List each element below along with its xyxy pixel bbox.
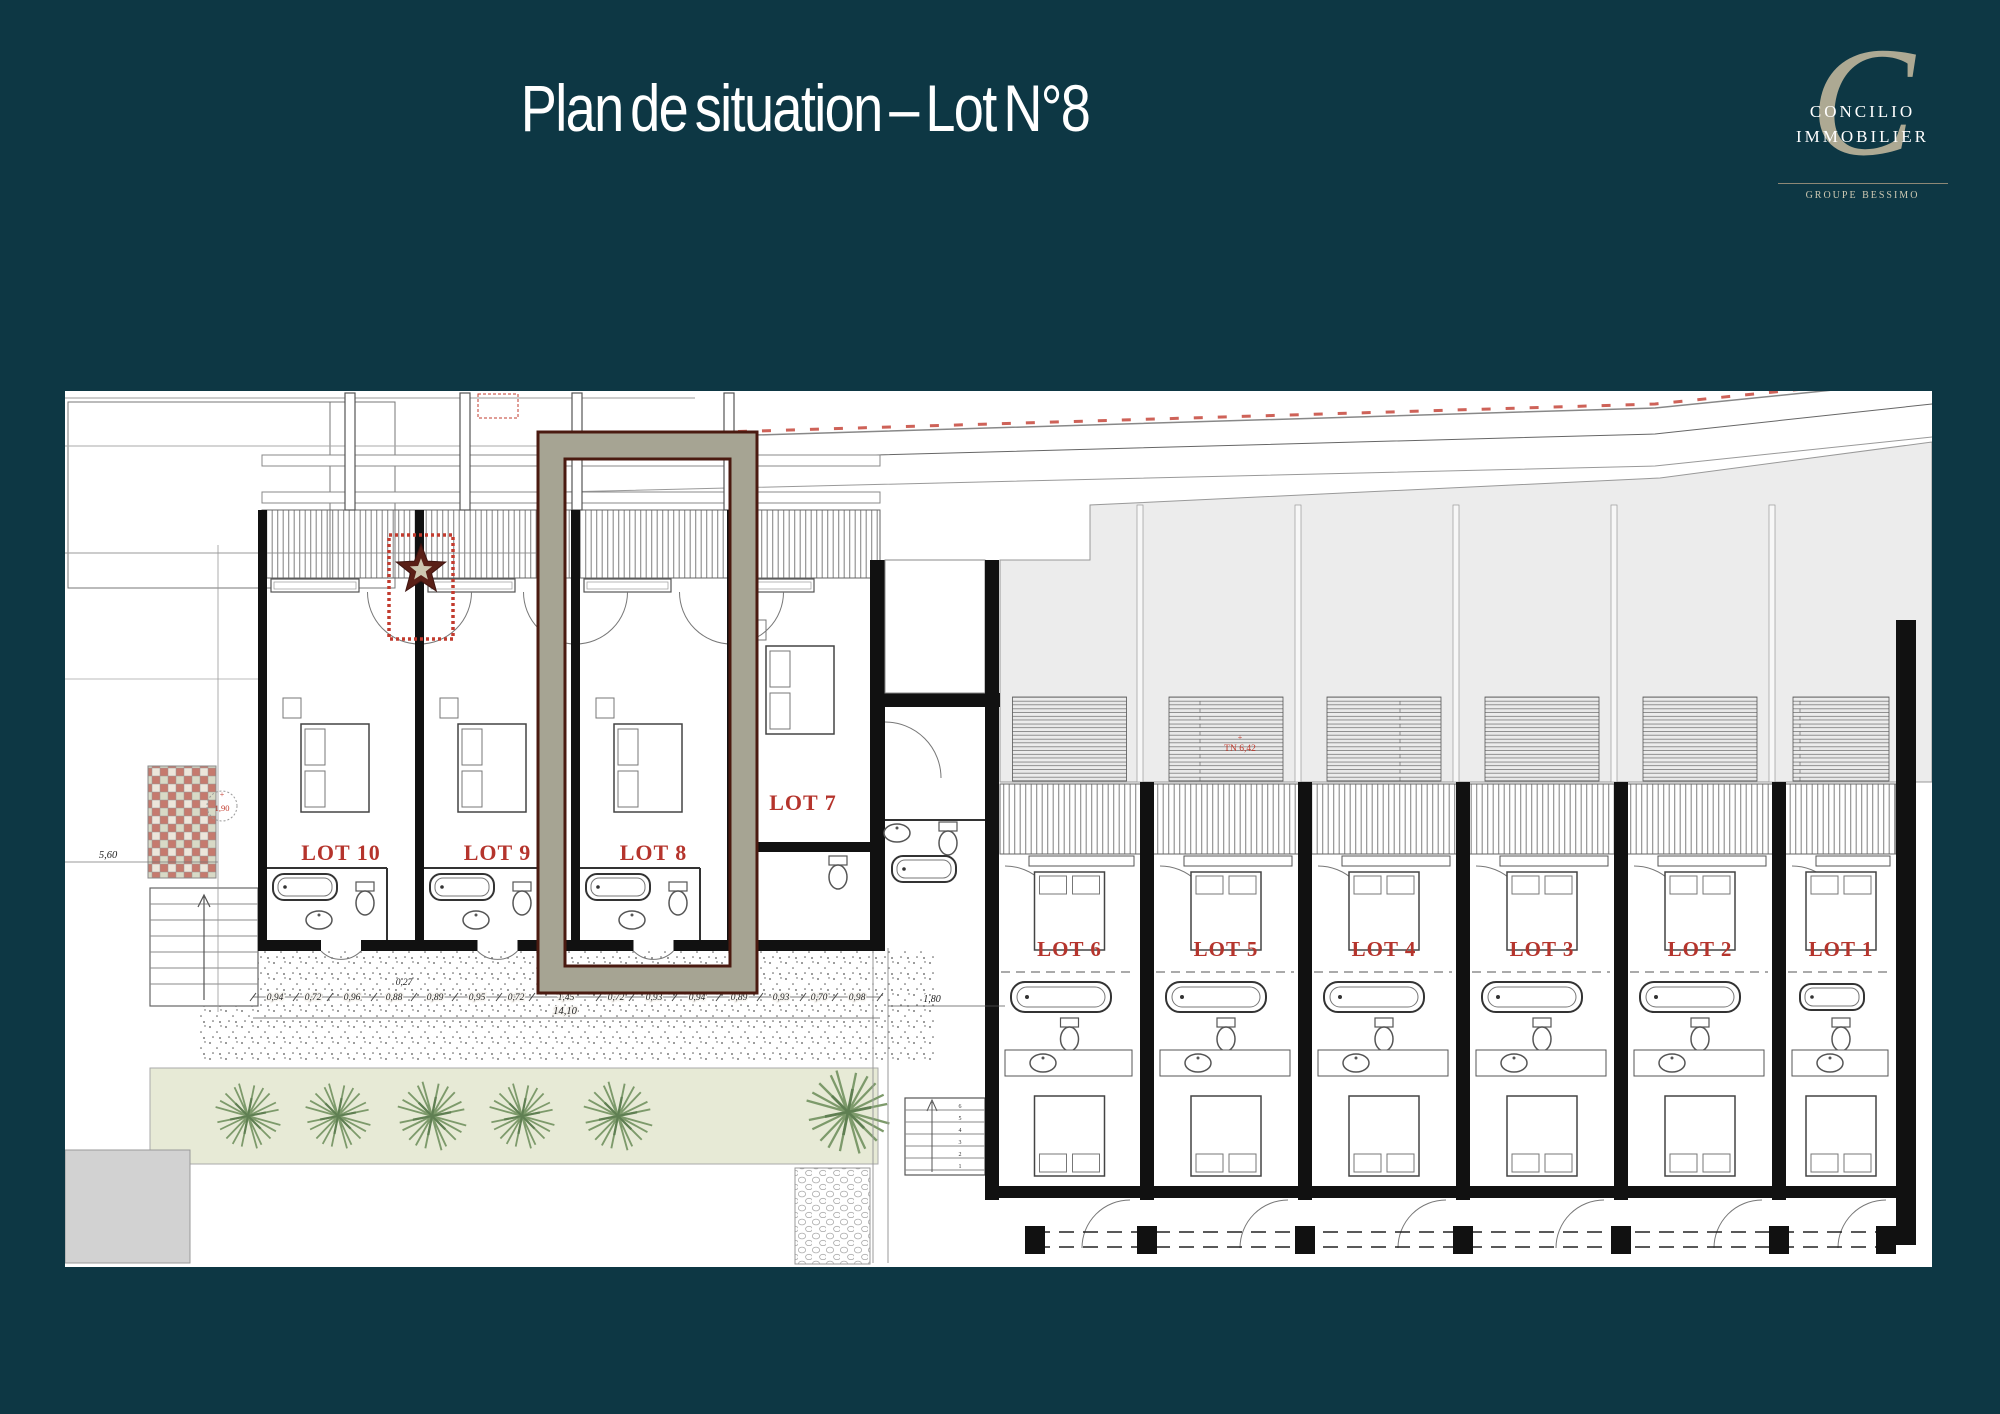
- dimension-label: 1,80: [923, 994, 941, 1005]
- toilet-icon: [829, 856, 847, 889]
- wall: [985, 1186, 1916, 1198]
- dimension-label: 0,94: [267, 993, 284, 1003]
- plan-graphic: +: [1238, 733, 1243, 742]
- bed-icon: [1035, 1096, 1105, 1176]
- window-sill: [1184, 856, 1292, 866]
- dimension-label: 0,96: [344, 993, 361, 1003]
- toilet-icon: [1375, 1018, 1393, 1051]
- roof-divider: [1137, 505, 1143, 782]
- stair-step-number: 1: [959, 1164, 962, 1170]
- dimension-label: 0,72: [508, 993, 525, 1003]
- bathtub-icon: [1011, 982, 1111, 1012]
- bathtub-icon: [1800, 984, 1864, 1010]
- stair-step-number: 6: [959, 1104, 962, 1110]
- bed-icon: [1806, 1096, 1876, 1176]
- wall: [1456, 782, 1470, 1200]
- walkway-post: [1611, 1226, 1631, 1254]
- sink-icon: [1030, 1054, 1056, 1072]
- cobble-path: [795, 1168, 870, 1264]
- toilet-icon: [1533, 1018, 1551, 1051]
- roof-divider: [1611, 505, 1617, 782]
- window-sill: [1342, 856, 1450, 866]
- vanity-counter: [1160, 1050, 1290, 1076]
- sink-icon: [1343, 1054, 1369, 1072]
- dimension-label: 0,98: [849, 993, 866, 1003]
- wall: [1140, 782, 1154, 1200]
- pergola-post: [460, 393, 470, 510]
- louver-vent: [1485, 697, 1599, 781]
- roof-divider: [1453, 505, 1459, 782]
- spot-elevation-label: 1,90: [215, 803, 230, 813]
- brand-divider: [1778, 183, 1948, 184]
- wall: [258, 510, 267, 950]
- sink-icon: [619, 911, 645, 929]
- walkway-post: [1025, 1226, 1045, 1254]
- dimension-label: 0,88: [386, 993, 403, 1003]
- vanity-counter: [1634, 1050, 1764, 1076]
- wall: [870, 560, 885, 948]
- toilet-icon: [1832, 1018, 1850, 1051]
- plan-graphic: [478, 940, 518, 951]
- lot-label: LOT 10: [301, 840, 381, 865]
- terrain-level-label: TN 6,42: [1224, 744, 1256, 754]
- bathtub-icon: [1640, 982, 1740, 1012]
- sink-icon: [1659, 1054, 1685, 1072]
- stair-step-number: 4: [959, 1128, 962, 1134]
- bathtub-icon: [586, 874, 650, 900]
- walkway-post: [1295, 1226, 1315, 1254]
- sink-icon: [1817, 1054, 1843, 1072]
- toilet-icon: [513, 882, 531, 915]
- lot-label: LOT 5: [1194, 937, 1259, 961]
- wall: [1614, 782, 1628, 1200]
- roof-divider: [1769, 505, 1775, 782]
- bed-icon: [1507, 1096, 1577, 1176]
- floor-plan: 654321LOT 10LOT 9LOT 8LOT 7LOT 6LOT 5LOT…: [65, 391, 1932, 1267]
- dimension-label: 5,60: [99, 850, 118, 861]
- vanity-counter: [1476, 1050, 1606, 1076]
- stair-step-number: 3: [959, 1140, 962, 1146]
- retaining-wall: [65, 1150, 190, 1263]
- louver-vent: [1643, 697, 1757, 781]
- dimension-label: 14,10: [553, 1006, 577, 1017]
- bed-icon: [1349, 1096, 1419, 1176]
- louver-vent: [1327, 697, 1441, 781]
- roof-divider: [1295, 505, 1301, 782]
- toilet-icon: [939, 822, 957, 855]
- louver-vent: [1013, 697, 1127, 781]
- bathtub-icon: [1166, 982, 1266, 1012]
- plan-graphic: [634, 940, 674, 951]
- stair-step-number: 5: [959, 1116, 962, 1122]
- plan-graphic: +: [220, 790, 225, 799]
- pergola-post: [345, 393, 355, 510]
- toilet-icon: [1061, 1018, 1079, 1051]
- dimension-label: 0,93: [773, 993, 790, 1003]
- floor-plan-panel: 654321LOT 10LOT 9LOT 8LOT 7LOT 6LOT 5LOT…: [65, 391, 1932, 1267]
- vanity-counter: [1318, 1050, 1448, 1076]
- lot-label: LOT 7: [769, 790, 837, 815]
- brand-group-name: GROUPE BESSIMO: [1770, 190, 1955, 201]
- vanity-counter: [1005, 1050, 1132, 1076]
- sink-icon: [1501, 1054, 1527, 1072]
- tiled-area: [148, 766, 216, 878]
- wall: [1298, 782, 1312, 1200]
- window-sill: [1029, 856, 1134, 866]
- toilet-icon: [1217, 1018, 1235, 1051]
- bed-icon: [1191, 1096, 1261, 1176]
- brand-logo: C CONCILIO IMMOBILIER GROUPE BESSIMO: [1770, 38, 1955, 201]
- lot-label: LOT 9: [464, 840, 532, 865]
- bathtub-icon: [1324, 982, 1424, 1012]
- window-sill: [1816, 856, 1890, 866]
- lot-label: LOT 4: [1352, 937, 1417, 961]
- lot-label: LOT 2: [1668, 937, 1733, 961]
- wall: [985, 560, 999, 1200]
- window-sill: [1500, 856, 1608, 866]
- deck-right: [1000, 784, 1896, 854]
- sink-icon: [463, 911, 489, 929]
- window-sill: [271, 579, 359, 592]
- wall: [1772, 782, 1786, 1200]
- bathtub-icon: [1482, 982, 1582, 1012]
- sink-icon: [1185, 1054, 1211, 1072]
- window-sill: [1658, 856, 1766, 866]
- wall: [571, 510, 580, 950]
- bed-icon: [1665, 1096, 1735, 1176]
- wall: [1896, 620, 1916, 1245]
- dimension-label: 0,70: [811, 993, 828, 1003]
- walkway-post: [1453, 1226, 1473, 1254]
- lot-label: LOT 3: [1510, 937, 1575, 961]
- dimension-label: 0,72: [305, 993, 322, 1003]
- walkway-post: [1137, 1226, 1157, 1254]
- brand-name-line1: CONCILIO: [1770, 100, 1955, 125]
- stair-step-number: 2: [959, 1152, 962, 1158]
- sink-icon: [306, 911, 332, 929]
- walkway-post: [1769, 1226, 1789, 1254]
- plan-graphic: [321, 940, 361, 951]
- lot-label: LOT 6: [1037, 937, 1102, 961]
- bathtub-icon: [892, 856, 956, 882]
- page-title: Plan de situation – Lot N°8: [416, 70, 1195, 146]
- toilet-icon: [669, 882, 687, 915]
- dimension-label: 0,95: [469, 993, 486, 1003]
- toilet-icon: [1691, 1018, 1709, 1051]
- window-sill: [428, 579, 515, 592]
- slide: { "slide": { "background": "#0d3744", "t…: [0, 0, 2000, 1414]
- walkway-post: [1876, 1226, 1896, 1254]
- louver-vent: [1793, 697, 1889, 781]
- brand-name-line2: IMMOBILIER: [1770, 125, 1955, 150]
- lot-label: LOT 8: [620, 840, 688, 865]
- bathtub-icon: [273, 874, 337, 900]
- bathtub-icon: [430, 874, 494, 900]
- toilet-icon: [356, 882, 374, 915]
- lot-label: LOT 1: [1809, 937, 1874, 961]
- dimension-label: 0,89: [427, 993, 444, 1003]
- wall: [870, 693, 1000, 707]
- sink-icon: [884, 824, 910, 842]
- louver-vent: [1169, 697, 1283, 781]
- window-sill: [584, 579, 671, 592]
- planter-bed: [150, 1068, 878, 1164]
- dimension-label: 0,27: [396, 978, 414, 988]
